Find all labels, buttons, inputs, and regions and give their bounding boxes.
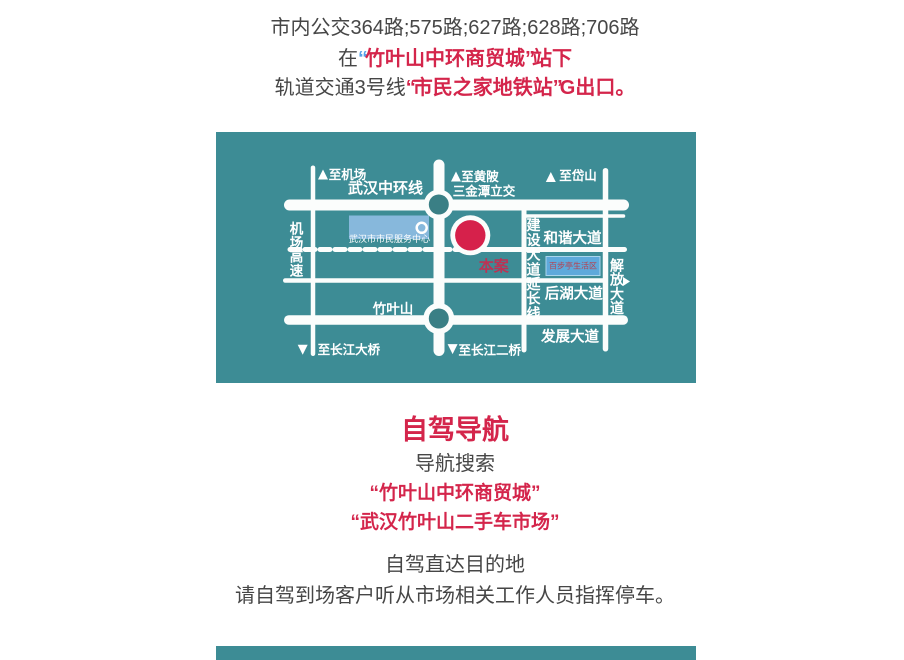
svg-text:至黄陂: 至黄陂	[461, 169, 499, 184]
svg-text:本案: 本案	[479, 257, 510, 275]
svg-text:三金潭立交: 三金潭立交	[453, 184, 516, 199]
svg-text:场: 场	[290, 236, 304, 251]
svg-text:道: 道	[527, 261, 541, 277]
svg-text:高: 高	[290, 249, 304, 265]
svg-text:长: 长	[527, 291, 542, 307]
svg-text:延: 延	[526, 276, 542, 292]
svg-text:设: 设	[527, 232, 542, 248]
svg-text:道: 道	[610, 300, 624, 316]
svg-text:速: 速	[290, 263, 304, 279]
svg-text:武汉中环线: 武汉中环线	[348, 179, 423, 197]
svg-text:后湖大道: 后湖大道	[545, 284, 603, 302]
svg-text:和谐大道: 和谐大道	[544, 229, 602, 247]
svg-text:机: 机	[290, 221, 304, 237]
svg-text:武汉市市民服务中心: 武汉市市民服务中心	[349, 233, 430, 244]
svg-text:线: 线	[527, 305, 541, 321]
svg-text:竹叶山: 竹叶山	[372, 300, 414, 316]
svg-text:大: 大	[527, 247, 541, 263]
svg-text:至岱山: 至岱山	[559, 168, 597, 183]
svg-text:建: 建	[527, 217, 541, 233]
svg-text:百步亭生活区: 百步亭生活区	[549, 261, 597, 271]
svg-text:发展大道: 发展大道	[540, 327, 599, 345]
svg-text:至长江大桥: 至长江大桥	[318, 342, 381, 357]
svg-text:至长江二桥: 至长江二桥	[459, 343, 522, 358]
